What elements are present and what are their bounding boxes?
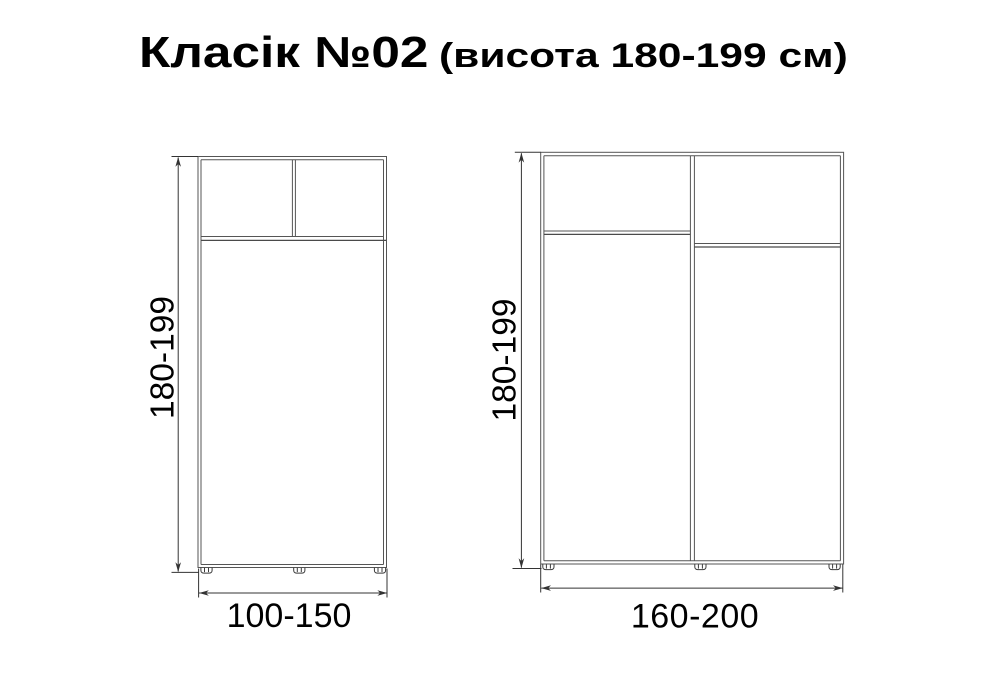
- svg-text:100-150: 100-150: [227, 597, 352, 635]
- svg-text:180-199: 180-199: [486, 299, 523, 422]
- svg-text:(висота 180-199 см): (висота 180-199 см): [439, 37, 848, 75]
- svg-text:Класік №02: Класік №02: [139, 29, 428, 77]
- svg-text:160-200: 160-200: [631, 598, 759, 636]
- svg-text:180-199: 180-199: [144, 296, 181, 419]
